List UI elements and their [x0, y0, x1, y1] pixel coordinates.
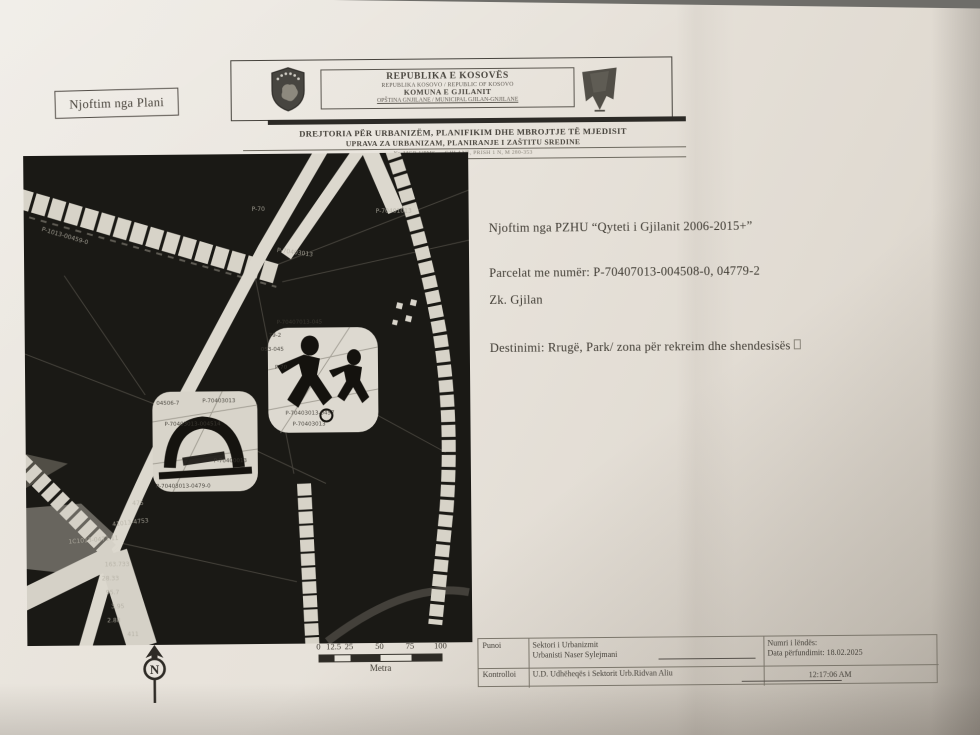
notice-type-text: Njoftim nga Plani	[69, 95, 164, 112]
map-parcel-label: 41013-4753	[112, 517, 149, 528]
map-parcel-labels: P-1013-00459-0P-70P-70401013P-70403013P-…	[23, 152, 472, 646]
map-scale-bar: 012.5255075100 Metra	[305, 640, 455, 677]
scale-tick: 12.5	[326, 641, 341, 651]
map-parcel-label: 053-045	[261, 347, 284, 353]
map-parcel-label: P-70400013	[214, 458, 247, 464]
table-role-punoi: Punoi	[478, 639, 528, 653]
table-role-kontrolloi: Kontrolloi	[479, 668, 529, 682]
map-parcel-label: 28.33	[102, 575, 119, 582]
approval-table: Punoi Sektori i Urbanizmit Urbanisti Nas…	[477, 634, 937, 687]
map-parcel-label: 2.88	[107, 617, 120, 624]
map-parcel-label: P-70401013	[376, 208, 412, 215]
municipality-subtitle: OPŠTINA GNJILANE / MUNICIPAL GJILAN-GNJI…	[322, 96, 574, 105]
notice-text-block: Njoftim nga PZHU “Qyteti i Gjilanit 2006…	[0, 0, 977, 4]
missing-glyph-box	[793, 339, 800, 349]
completion-date: Data përfundimit: 18.02.2025	[767, 647, 934, 658]
table-case-cell: Numri i lëndës: Data përfundimit: 18.02.…	[763, 635, 938, 660]
map-parcel-label: 79-2	[269, 333, 282, 339]
scale-tick: 100	[434, 640, 447, 650]
scale-unit-label: Metra	[306, 662, 456, 673]
north-letter: N	[150, 662, 160, 677]
table-controller-cell: U.D. Udhëheqës i Sektorit Urb.Ridvan Ali…	[529, 666, 764, 682]
map-parcel-label: 04506-7	[156, 401, 179, 407]
map-parcel-label: 1C1013-0471 11	[68, 535, 119, 546]
map-parcel-label: P-70407013-045	[277, 319, 323, 325]
municipal-emblem-icon	[579, 65, 619, 115]
scale-tick: 50	[375, 641, 384, 651]
map-parcel-label: P-70403013-004514	[164, 421, 220, 427]
cadastral-map: P-1013-00459-0P-70P-70401013P-70403013P-…	[23, 152, 472, 646]
map-parcel-label: P-70403013	[277, 247, 314, 259]
notice-title: Njoftim nga PZHU “Qyteti i Gjilanit 2006…	[489, 219, 753, 236]
map-parcel-label: 475	[132, 500, 144, 507]
timestamp: 12:17:06 AM	[809, 670, 852, 679]
photo-background: Njoftim nga Plani REPUBLIKA E KOSOVËS RE…	[0, 0, 980, 735]
notice-parcels: Parcelat me numër: P-70407013-004508-0, …	[489, 264, 760, 281]
notice-type-label: Njoftim nga Plani	[54, 88, 179, 119]
map-parcel-label: P-70403013-0457	[285, 410, 334, 416]
document-page: Njoftim nga Plani REPUBLIKA E KOSOVËS RE…	[0, 0, 980, 735]
signature-line	[742, 680, 842, 682]
map-parcel-label: P-70403013-0479-0	[156, 483, 211, 489]
map-parcel-label: 411	[127, 631, 139, 638]
scale-tick: 25	[345, 641, 354, 651]
map-parcel-label: 3.95	[111, 603, 124, 610]
map-parcel-label: 163.733	[105, 561, 130, 568]
map-parcel-label: P-70403013	[292, 421, 325, 427]
scale-bar-segments	[318, 653, 442, 662]
scale-tick-labels: 012.5255075100	[305, 640, 455, 651]
north-arrow-icon: N	[129, 643, 180, 705]
notice-destination: Destinimi: Rrugë, Park/ zona për rekreim…	[490, 338, 801, 356]
kosovo-coat-of-arms-icon	[269, 65, 306, 115]
map-parcel-label: P-70	[252, 206, 265, 213]
map-parcel-label: P-1013-00459-0	[41, 226, 89, 246]
scale-tick: 0	[316, 641, 320, 651]
map-parcel-label: P-70403013	[202, 398, 235, 404]
map-parcel-label: 95.7	[106, 589, 119, 596]
letterhead-center: REPUBLIKA E KOSOVËS REPUBLIKA KOSOVO / R…	[320, 67, 574, 109]
map-parcel-label: P-70	[275, 365, 287, 371]
scale-tick: 75	[406, 641, 415, 651]
page-content: Njoftim nga Plani REPUBLIKA E KOSOVËS RE…	[0, 0, 980, 735]
notice-zone: Zk. Gjilan	[489, 293, 543, 308]
